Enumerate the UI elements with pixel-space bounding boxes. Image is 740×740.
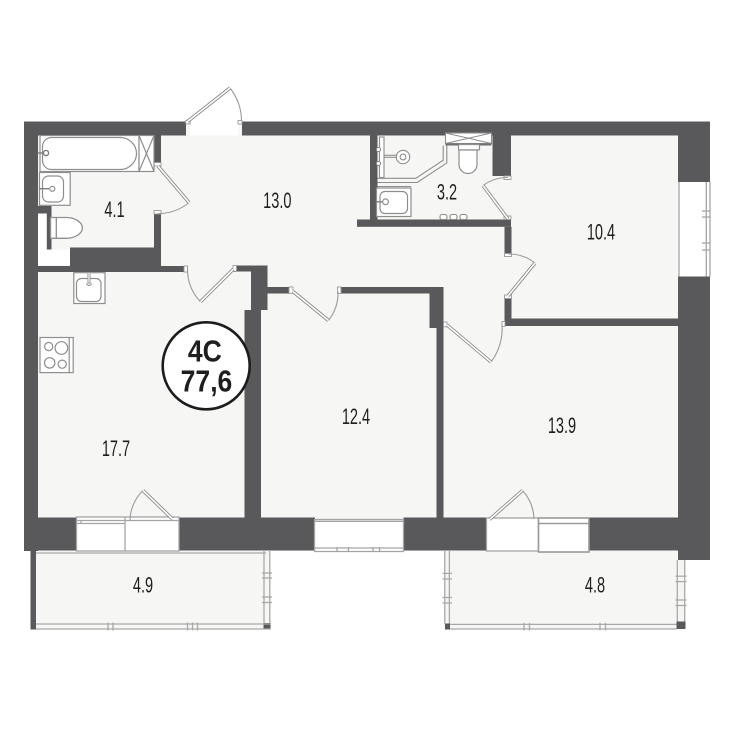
svg-text:13.0: 13.0	[263, 189, 291, 214]
svg-text:4.1: 4.1	[104, 198, 124, 223]
svg-text:4C: 4C	[188, 335, 222, 369]
svg-text:4.8: 4.8	[585, 574, 605, 599]
svg-text:3.2: 3.2	[437, 181, 457, 206]
svg-text:13.9: 13.9	[548, 414, 576, 439]
svg-text:12.4: 12.4	[342, 405, 370, 430]
svg-text:17.7: 17.7	[102, 437, 130, 462]
svg-text:10.4: 10.4	[587, 221, 615, 246]
svg-text:4.9: 4.9	[133, 574, 153, 599]
svg-text:77,6: 77,6	[181, 365, 233, 399]
